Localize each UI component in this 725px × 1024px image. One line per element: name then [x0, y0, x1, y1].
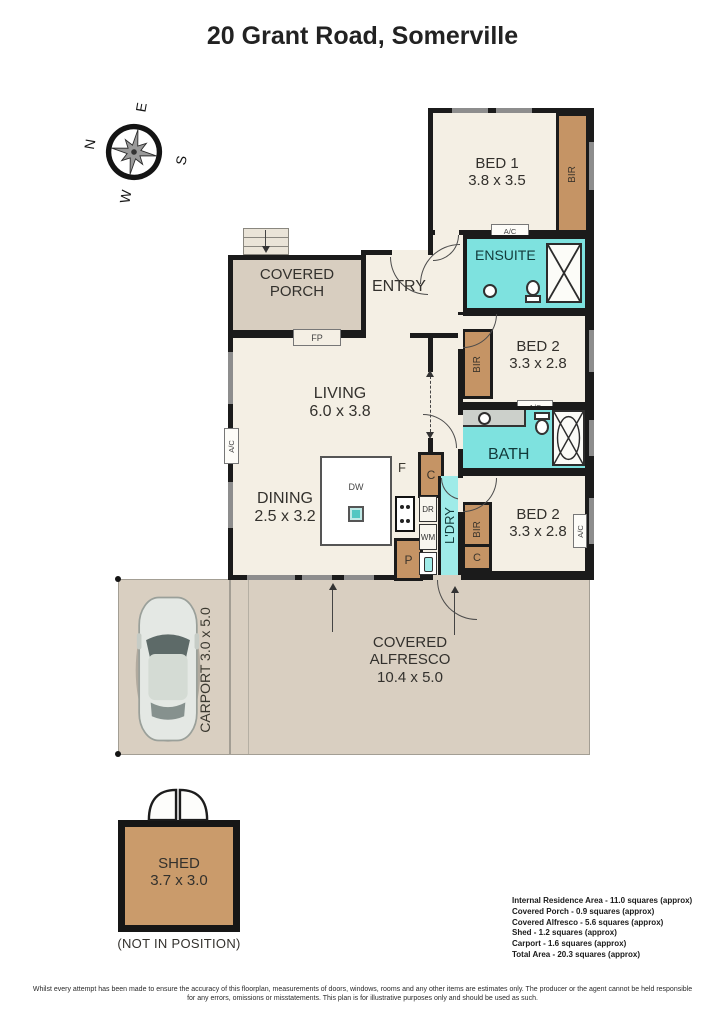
porch-label: COVERED PORCH — [238, 266, 356, 301]
ensuite-toilet-icon — [525, 280, 541, 303]
laundry-label: L'DRY — [442, 507, 457, 544]
window — [589, 142, 594, 190]
entry-arrow-line — [332, 590, 333, 632]
window — [452, 108, 488, 113]
bathtub-icon — [552, 410, 585, 466]
cooktop-icon — [395, 496, 415, 532]
legend-line: Carport - 1.6 squares (approx) — [512, 939, 722, 950]
ensuite-basin-icon — [483, 284, 497, 298]
alfresco-slab-line — [248, 580, 249, 754]
disclaimer-text: Whilst every attempt has been made to en… — [28, 985, 697, 1003]
ensuite-room: ENSUITE — [463, 235, 589, 312]
page-title: 20 Grant Road, Somerville — [0, 22, 725, 51]
air-conditioner-label: A/C — [573, 514, 587, 548]
shed-note: (NOT IN POSITION) — [95, 936, 263, 951]
living-label: LIVING 6.0 x 3.8 — [285, 385, 395, 422]
legend-line: Covered Alfresco - 5.6 squares (approx) — [512, 918, 722, 929]
window — [302, 575, 332, 580]
window — [589, 498, 594, 544]
entry-arrow-line — [454, 593, 455, 635]
bath-room: BATH — [458, 406, 589, 472]
bath-basin-icon — [478, 412, 491, 425]
carport-label: CARPORT 3.0 x 5.0 — [190, 600, 220, 740]
entry-living-opening — [366, 333, 410, 338]
fridge-label: F — [398, 460, 406, 475]
bath-toilet-icon — [534, 412, 550, 435]
carport-corner-dot — [115, 576, 121, 582]
bed2-low-cupboard: C — [462, 544, 492, 571]
entry-arrow-head — [451, 586, 459, 593]
entry-hall-opening — [428, 285, 433, 330]
entry-label: ENTRY — [372, 278, 426, 296]
compass-w: W — [116, 188, 134, 205]
carport-corner-dot — [115, 751, 121, 757]
window — [228, 352, 233, 404]
legend-line: Covered Porch - 0.9 squares (approx) — [512, 907, 722, 918]
entry-arrow-head — [329, 583, 337, 590]
shed-label: SHED 3.7 x 3.0 — [128, 855, 230, 890]
floorplan-page: 20 Grant Road, Somerville N E S W CARPOR… — [0, 0, 725, 1024]
bath-door-opening — [458, 415, 463, 449]
compass-s: S — [173, 154, 190, 166]
bed1-built-in-robe: BIR — [556, 113, 589, 236]
compass-n: N — [81, 138, 99, 151]
ensuite-shower-icon — [546, 243, 582, 303]
legend-line: Internal Residence Area - 11.0 squares (… — [512, 896, 722, 907]
hall-wall — [428, 333, 433, 372]
air-conditioner-label: A/C — [224, 428, 239, 464]
alfresco-label: COVERED ALFRESCO 10.4 x 5.0 — [300, 634, 520, 686]
bed2-low-label: BED 2 3.3 x 2.8 — [490, 506, 586, 541]
window — [589, 330, 594, 372]
window — [496, 108, 532, 113]
area-legend: Internal Residence Area - 11.0 squares (… — [512, 896, 722, 961]
dishwasher-label: DW — [322, 482, 390, 492]
hall-opening-arrow — [426, 370, 434, 377]
bir-label: BIR — [471, 521, 482, 538]
bir-label: BIR — [472, 356, 483, 373]
front-door-opening — [392, 250, 428, 255]
bed2-mid-label: BED 2 3.3 x 2.8 — [492, 338, 584, 373]
bed1-label: BED 1 3.8 x 3.5 — [441, 155, 553, 190]
compass-e: E — [133, 101, 150, 113]
island-sink-icon — [348, 506, 364, 522]
dryer: DR — [419, 496, 437, 522]
fireplace-label: FP — [293, 329, 341, 346]
bir-label: BIR — [567, 166, 578, 183]
bath-label: BATH — [488, 446, 529, 464]
legend-line: Total Area - 20.3 squares (approx) — [512, 950, 722, 961]
steps-arrow-head — [262, 246, 270, 253]
ensuite-label: ENSUITE — [475, 247, 536, 263]
washing-machine: WM — [419, 524, 437, 550]
shed-doors-icon — [146, 788, 210, 821]
steps-arrow-line — [265, 230, 266, 246]
kitchen-island: DW — [320, 456, 392, 546]
bath-vanity-icon — [462, 410, 526, 427]
window — [344, 575, 374, 580]
legend-line: Shed - 1.2 squares (approx) — [512, 928, 722, 939]
window — [247, 575, 295, 580]
laundry-trough-icon — [419, 552, 437, 575]
window — [589, 420, 594, 456]
compass-rose-icon: N E S W — [71, 89, 196, 214]
